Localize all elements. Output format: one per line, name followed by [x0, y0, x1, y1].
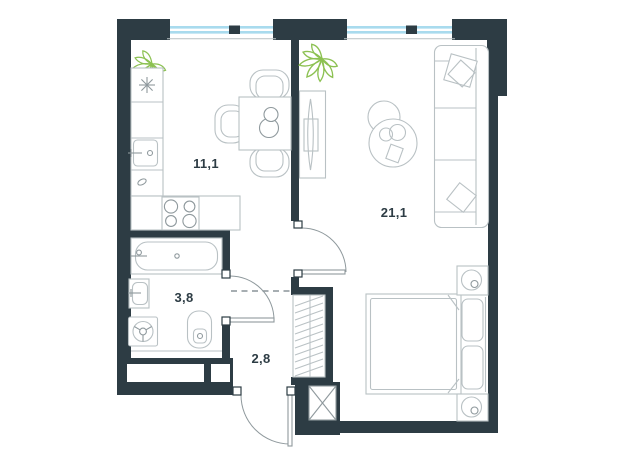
window-kitchen [167, 26, 276, 39]
washbasin [128, 279, 149, 308]
bed-pillow [462, 346, 483, 389]
nightstand-bottom [457, 394, 488, 421]
plant-icon [299, 43, 339, 82]
window-mullion [229, 26, 240, 35]
vent-recess-large [127, 364, 204, 382]
wall-bathroom-right-lower [222, 325, 230, 360]
bathroom: 3,8 [128, 238, 222, 351]
vent-shaft [309, 386, 336, 420]
vase [264, 108, 278, 122]
bathroom-area-label: 3,8 [175, 290, 194, 305]
window-living [344, 26, 455, 39]
floor-plan: 11,1 [0, 0, 624, 468]
wall-wardrobe-right [325, 287, 333, 385]
door-leaf [288, 395, 292, 446]
chair-bottom [250, 148, 289, 177]
wall-partition-kitchen-living [291, 40, 299, 221]
snowflake-icon [139, 77, 155, 93]
floor-plan-svg: 11,1 [0, 0, 624, 468]
wall-right-upper [487, 19, 507, 96]
door-bathroom [222, 270, 274, 325]
bathtub [131, 238, 222, 274]
dining-table [239, 97, 291, 150]
wall-top-left-block [117, 19, 170, 40]
hallway-area-label: 2,8 [252, 351, 271, 366]
coffee-table [368, 101, 417, 167]
vent-recess-small [211, 364, 230, 382]
wardrobe [293, 295, 325, 377]
bed [366, 294, 486, 394]
door-entrance [233, 387, 295, 446]
kitchen: 11,1 [128, 49, 291, 230]
wall-bathroom-right-upper [222, 230, 230, 270]
wall-top-middle-block [273, 19, 347, 40]
toilet [188, 311, 212, 348]
door-leaf [302, 270, 345, 274]
bed-pillow [462, 299, 483, 341]
washing-machine [129, 317, 158, 346]
living-room-area-label: 21,1 [381, 205, 408, 220]
kitchen-area-label: 11,1 [193, 156, 219, 171]
sofa [435, 46, 489, 228]
nightstand-top [457, 266, 488, 295]
wall-right-lower [488, 95, 498, 433]
wall-bathroom-top [128, 230, 230, 238]
window-mullion [406, 26, 417, 35]
tv-unit [300, 91, 326, 178]
door-leaf [230, 318, 274, 322]
door-living [294, 221, 346, 277]
stove [162, 197, 199, 230]
chair-top [250, 70, 289, 99]
hallway: 2,8 [231, 291, 336, 420]
